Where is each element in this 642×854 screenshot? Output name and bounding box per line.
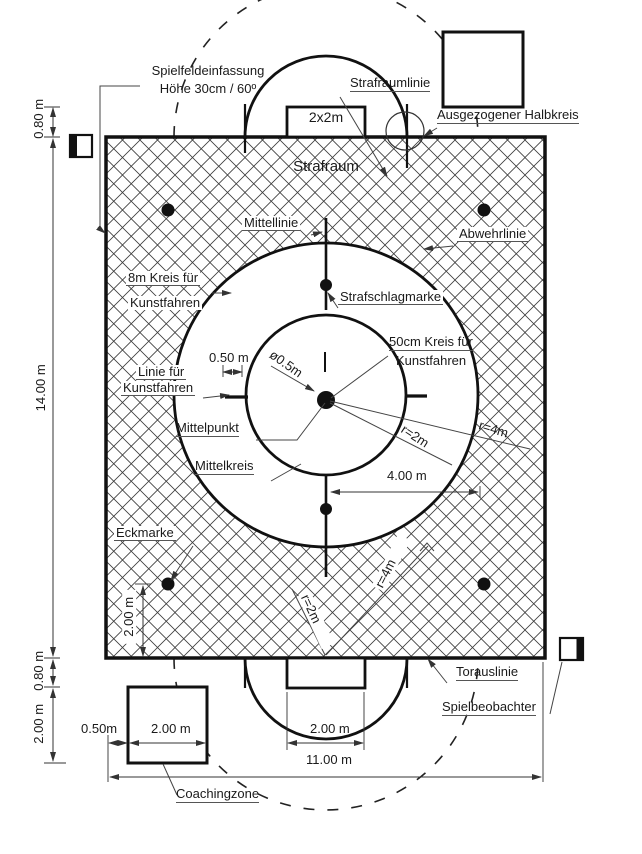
dim-080-bottom: 0.80 m (32, 647, 46, 695)
kreis8m-label-line1: 8m Kreis für (126, 271, 200, 286)
kreis50cm-label-line1: 50cm Kreis für (389, 335, 473, 351)
dim-200-bottom-left: 2.00 m (32, 699, 46, 749)
dim-1400: 14.00 m (34, 360, 48, 416)
eckmarke-label: Eckmarke (114, 526, 176, 541)
spielbeobachter-square (560, 638, 583, 660)
goal-box-bottom (287, 658, 365, 688)
eckmarke-dot-tl (162, 204, 175, 217)
referee-square-top-left (70, 135, 92, 157)
strafschlagmarke-top-dot (320, 279, 332, 291)
strafschlagmarke-label: Strafschlagmarke (338, 290, 443, 305)
dim-200-goal: 2.00 m (310, 722, 350, 736)
eckmarke-dot-tr (478, 204, 491, 217)
dim-050-bottom: 0.50m (81, 722, 117, 736)
enclosure-label-line1: Spielfeldeinfassung (140, 64, 276, 78)
coachingzone-label: Coachingzone (176, 787, 259, 803)
radball-field-diagram: Spielfeldeinfassung Höhe 30cm / 60º Stra… (0, 0, 642, 854)
strafschlagmarke-bottom-dot (320, 503, 332, 515)
linie-kunstfahren-label-line1: Linie für (136, 365, 186, 380)
eckmarke-dot-bl (162, 578, 175, 591)
dim-200-coaching: 2.00 m (151, 722, 191, 736)
dim-200-corner: 2.00 m (122, 590, 136, 644)
mittellinie-label: Mittellinie (242, 216, 300, 231)
strafraumlinie-label: Strafraumlinie (350, 76, 430, 92)
mittelkreis-label: Mittelkreis (195, 459, 254, 475)
spielbeobachter-label: Spielbeobachter (442, 700, 536, 716)
kreis8m-label-line2: Kunstfahren (128, 296, 202, 310)
goal-size-label: 2x2m (287, 110, 365, 125)
table-square-top-right (443, 32, 523, 107)
strafraum-label: Strafraum (286, 159, 366, 175)
eckmarke-dot-br (478, 578, 491, 591)
dim-1100: 11.00 m (306, 753, 352, 767)
enclosure-label-line2: Höhe 30cm / 60º (140, 82, 276, 96)
ausgezogener-halbkreis-label: Ausgezogener Halbkreis (437, 108, 579, 124)
dim-400: 4.00 m (387, 469, 427, 483)
torauslinie-label: Torauslinie (456, 665, 518, 681)
abwehrlinie-label: Abwehrlinie (457, 227, 528, 242)
mittelpunkt-label: Mittelpunkt (176, 421, 239, 437)
kreis50cm-label-line2: Kunstfahren (396, 354, 466, 368)
linie-kunstfahren-label-line2: Kunstfahren (121, 381, 195, 396)
dim-080-top: 0.80 m (32, 95, 46, 143)
dim-050-top: 0.50 m (209, 351, 249, 365)
mittelpunkt-dot (317, 391, 335, 409)
